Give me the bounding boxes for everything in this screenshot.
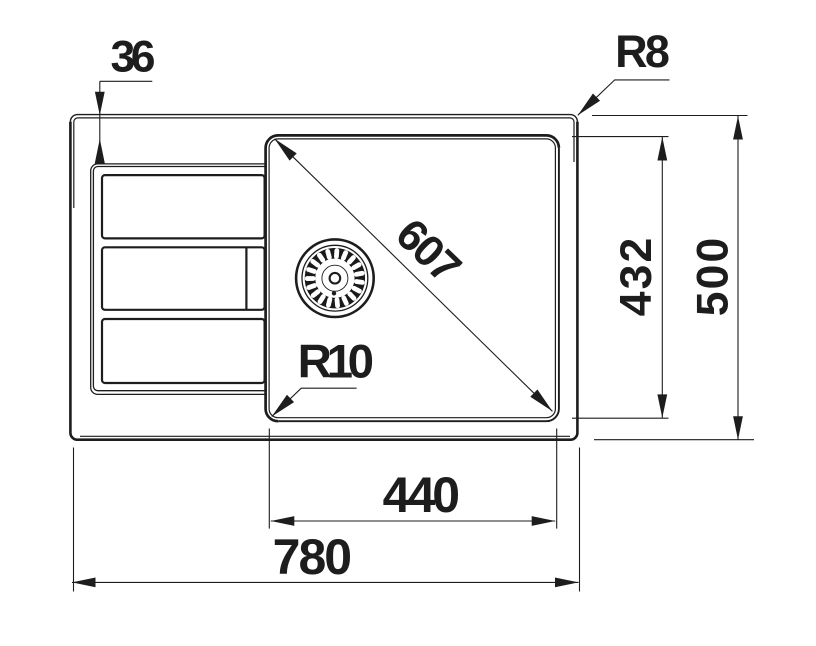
svg-text:440: 440 xyxy=(383,467,461,523)
svg-text:500: 500 xyxy=(688,238,737,317)
svg-text:36: 36 xyxy=(111,33,156,82)
svg-text:R10: R10 xyxy=(298,336,375,389)
svg-text:780: 780 xyxy=(273,529,353,585)
svg-text:432: 432 xyxy=(612,238,661,317)
svg-text:R8: R8 xyxy=(615,26,670,77)
